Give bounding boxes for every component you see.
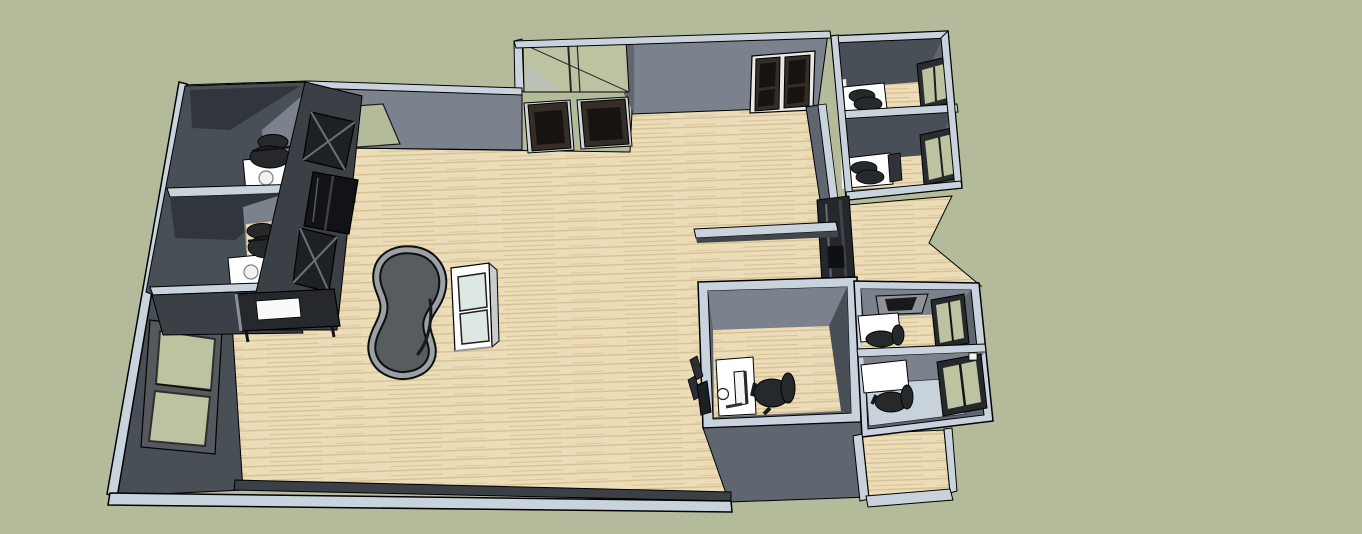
dark-shelf-unit — [817, 196, 855, 283]
wall-display-case-3 — [293, 228, 337, 292]
office-br1-window — [931, 294, 969, 349]
white-display-cabinet — [451, 263, 499, 351]
top-wall-double-door — [750, 51, 815, 113]
office-block-top-left — [146, 82, 362, 342]
wall-display-case-2 — [304, 172, 358, 234]
office-bm-mouse — [718, 389, 729, 400]
bottom-right-floor-patch — [862, 430, 950, 499]
floorplan-3d-render[interactable] — [0, 0, 1362, 534]
left-wall-windows — [141, 320, 222, 454]
wall-display-case-1 — [303, 112, 355, 170]
office-bm-south-face — [703, 422, 869, 502]
office-br2-monitor — [861, 360, 909, 393]
office-tr2-monitor — [888, 153, 902, 182]
kidney-shaped-table — [372, 250, 443, 376]
office-block-top-right — [831, 31, 962, 200]
office-block-bottom-right — [854, 281, 993, 437]
office-br1-desk — [876, 294, 928, 315]
office-br2-window — [937, 353, 987, 416]
office-bm-back-wall — [708, 287, 847, 330]
entry-vestibule-glazing — [523, 40, 629, 92]
office-bm-desk — [716, 357, 756, 416]
window-tag — [969, 353, 977, 360]
sketchup-viewport[interactable] — [0, 0, 1362, 534]
